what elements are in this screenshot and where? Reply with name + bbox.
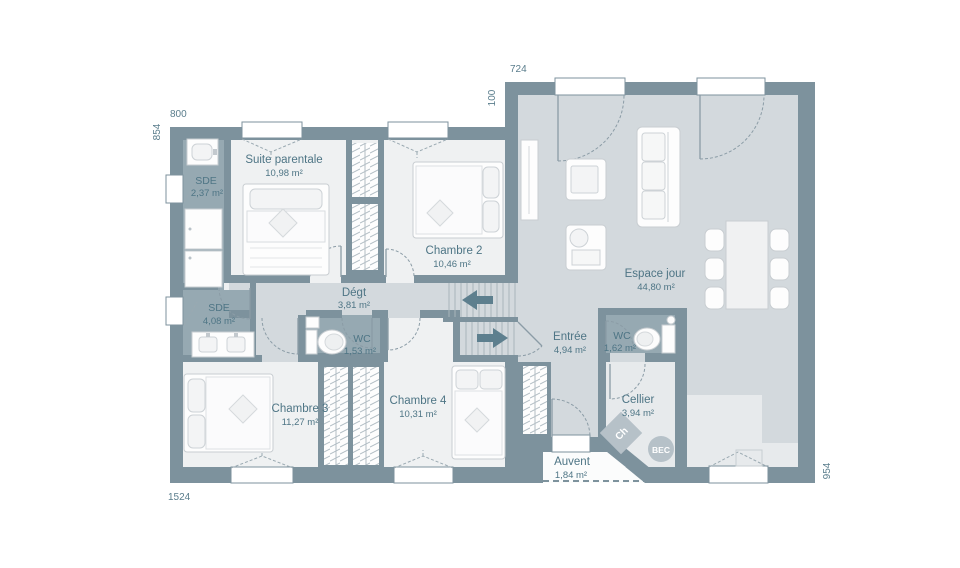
window-sde2 (166, 297, 183, 325)
french-door-1 (555, 78, 625, 95)
label-suite: Suite parentale (245, 154, 322, 166)
sink-sde1 (187, 139, 218, 165)
bed-chambre4 (452, 366, 505, 459)
bed-suite (243, 184, 329, 275)
kitchen-zone-2 (762, 443, 798, 467)
vestibule-floor (256, 315, 298, 362)
french-door-2 (697, 78, 765, 95)
dim-854: 854 (152, 123, 163, 140)
window-chambre2 (388, 122, 448, 138)
armchair (566, 159, 606, 200)
label-chambre2: Chambre 2 (426, 245, 483, 257)
label-entree: Entrée (553, 331, 587, 343)
entrance-door-threshold (552, 435, 590, 452)
kitchen-zone (683, 395, 762, 467)
large-sofa (637, 127, 680, 227)
area-chambre4: 10,31 m² (399, 409, 437, 420)
wardrobe-chambre3 (324, 367, 348, 465)
area-degt: 3,81 m² (338, 300, 370, 311)
window-chambre3 (231, 467, 293, 483)
dim-954: 954 (822, 462, 833, 479)
window-suite (242, 122, 302, 138)
window-espace-jour (709, 466, 768, 483)
area-entree: 4,94 m² (554, 345, 586, 356)
label-espace-jour: Espace jour (625, 268, 686, 280)
bed-chambre3 (184, 374, 273, 452)
dim-800: 800 (170, 109, 187, 120)
vanity-sde2 (192, 332, 254, 357)
label-cellier: Cellier (622, 394, 655, 406)
area-sde1: 2,37 m² (191, 188, 223, 199)
floor-plan: Ch BEC Suite parentale 10,98 m² SDE 2,37… (0, 0, 960, 568)
label-auvent: Auvent (554, 456, 591, 468)
dim-724: 724 (510, 64, 527, 75)
area-suite: 10,98 m² (265, 168, 303, 179)
small-sofa (566, 225, 606, 270)
area-auvent: 1,84 m² (555, 470, 587, 481)
window-sde1 (166, 175, 183, 203)
bec-label: BEC (652, 445, 670, 455)
dim-1524: 1524 (168, 492, 191, 503)
area-chambre3: 11,27 m² (282, 417, 319, 428)
dim-100: 100 (487, 89, 498, 106)
sideboard (521, 140, 538, 220)
bed-chambre2 (413, 162, 503, 238)
wardrobe-chambre4 (353, 367, 379, 465)
label-sde1: SDE (195, 175, 217, 187)
label-chambre3: Chambre 3 (272, 403, 329, 415)
window-chambre4 (394, 467, 453, 483)
bec-unit: BEC (648, 436, 674, 462)
area-wc2: 1,62 m² (604, 343, 636, 354)
label-wc2: WC (613, 330, 631, 342)
label-sde2: SDE (208, 302, 230, 314)
dining-table (705, 221, 789, 309)
label-degt: Dégt (342, 287, 367, 299)
closets (185, 209, 222, 287)
area-espace-jour: 44,80 m² (637, 282, 675, 293)
area-wc1: 1,53 m² (344, 346, 376, 357)
area-chambre2: 10,46 m² (433, 259, 471, 270)
area-cellier: 3,94 m² (622, 408, 654, 419)
floor-plan-page: Ch BEC Suite parentale 10,98 m² SDE 2,37… (0, 0, 960, 568)
label-wc1: WC (353, 333, 371, 345)
wardrobe-entree (518, 362, 551, 438)
label-chambre4: Chambre 4 (390, 395, 447, 407)
wardrobe-suite (352, 143, 378, 270)
area-sde2: 4,08 m² (203, 316, 235, 327)
